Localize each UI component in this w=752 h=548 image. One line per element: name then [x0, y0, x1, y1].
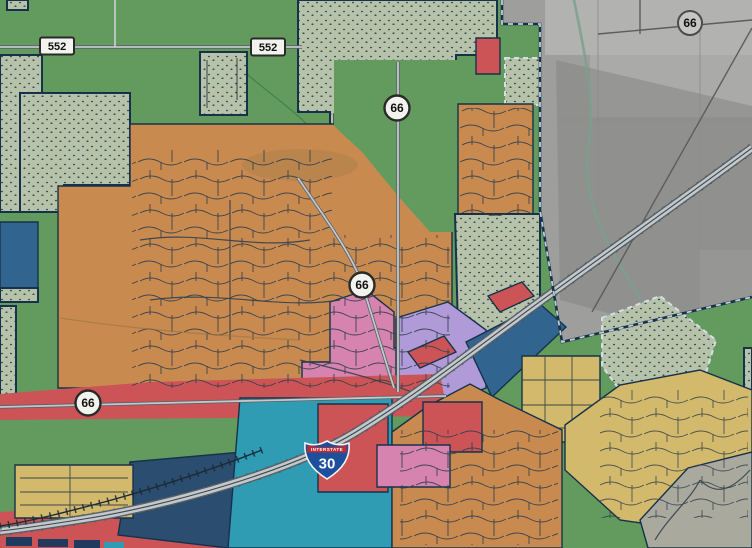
- stipple-district[interactable]: [200, 52, 247, 115]
- zone-red-patch[interactable]: [476, 38, 500, 74]
- svg-text:66: 66: [683, 16, 697, 30]
- zoning-map-canvas[interactable]: 552 552 66 66 66 66 INTERSTATE 30: [0, 0, 752, 548]
- route-552-shield: 552: [40, 38, 74, 55]
- svg-text:66: 66: [355, 278, 369, 292]
- stipple-district[interactable]: [0, 288, 38, 302]
- route-66-shield: 66: [350, 273, 375, 298]
- svg-text:66: 66: [81, 396, 95, 410]
- route-66-shield: 66: [76, 391, 101, 416]
- route-66-shield: 66: [385, 96, 410, 121]
- aerial-dark-overlay: [556, 60, 752, 322]
- zone-blue-west[interactable]: [0, 222, 38, 290]
- route-66-shield-gray: 66: [678, 11, 702, 35]
- zone-navy-strip[interactable]: [74, 540, 100, 548]
- svg-text:30: 30: [319, 456, 336, 473]
- stipple-district[interactable]: [0, 306, 16, 404]
- route-552-shield: 552: [251, 39, 285, 56]
- svg-text:66: 66: [390, 101, 404, 115]
- svg-text:552: 552: [48, 41, 66, 53]
- stipple-district[interactable]: [505, 58, 540, 105]
- map-viewport[interactable]: 552 552 66 66 66 66 INTERSTATE 30: [0, 0, 752, 548]
- stipple-district[interactable]: [7, 0, 28, 10]
- svg-text:552: 552: [259, 42, 277, 54]
- zone-navy-strip[interactable]: [38, 539, 68, 547]
- svg-text:INTERSTATE: INTERSTATE: [311, 447, 343, 452]
- zone-navy-strip[interactable]: [6, 537, 32, 546]
- zone-teal-strip[interactable]: [104, 542, 124, 548]
